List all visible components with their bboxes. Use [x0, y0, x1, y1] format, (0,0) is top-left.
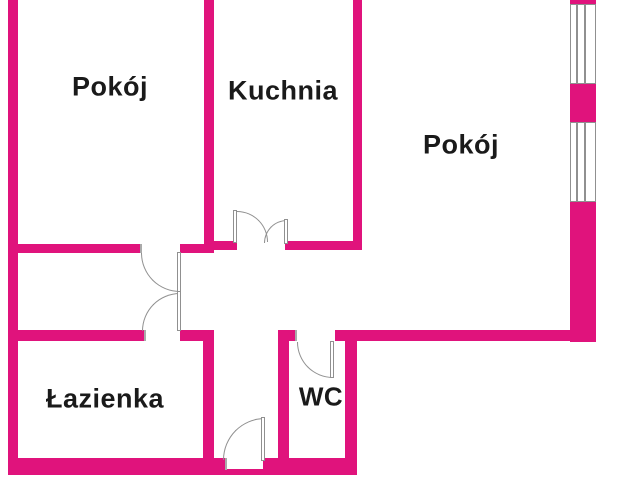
door-jamb	[144, 330, 146, 341]
window-glazing-line	[584, 123, 586, 201]
room-label-lazienka: Łazienka	[46, 384, 164, 415]
door-leaf-entrance	[261, 417, 265, 461]
door-jamb	[140, 244, 142, 253]
wall-bottom-exterior	[8, 458, 357, 475]
door-jamb	[295, 330, 297, 341]
room-label-pokoj-top-left: Pokój	[72, 72, 148, 103]
room-label-pokoj-right: Pokój	[423, 130, 499, 161]
door-leaf-wc	[330, 341, 334, 378]
window-glazing-line	[576, 5, 578, 83]
wall-left-exterior	[8, 0, 18, 475]
room-label-kuchnia: Kuchnia	[228, 76, 338, 107]
wall-room1-bottom-left	[8, 244, 142, 253]
door-leaf-kitchen-left	[233, 210, 237, 243]
room-label-wc: WC	[299, 382, 343, 413]
door-arc-entrance	[223, 418, 265, 460]
door-leaf-bathroom	[177, 291, 181, 331]
door-arc-room1	[141, 253, 180, 292]
wall-divider-kitchen-room2	[353, 0, 362, 250]
wall-bathroom-top-left	[8, 330, 145, 341]
door-arc-kitchen-left	[237, 211, 268, 242]
door-arc-wc	[297, 342, 333, 378]
wall-right-lower-segment	[570, 202, 596, 342]
door-arc-bathroom	[142, 293, 180, 331]
wall-wc-right	[345, 330, 357, 475]
window-upper	[570, 4, 596, 84]
door-leaf-kitchen-right	[284, 219, 288, 244]
wall-room2-bottom	[335, 330, 592, 341]
window-lower	[570, 122, 596, 202]
floor-plan: Pokój Kuchnia Pokój Łazienka WC	[0, 0, 640, 480]
window-glazing-line	[576, 123, 578, 201]
wall-divider-room1-kitchen	[204, 0, 214, 251]
door-leaf-room1	[177, 252, 181, 292]
window-glazing-line	[584, 5, 586, 83]
wall-bathroom-right	[203, 330, 214, 475]
wall-kitchen-bottom-right	[285, 241, 362, 250]
wall-wc-left	[278, 330, 289, 475]
wall-right-mid-segment	[570, 84, 596, 122]
